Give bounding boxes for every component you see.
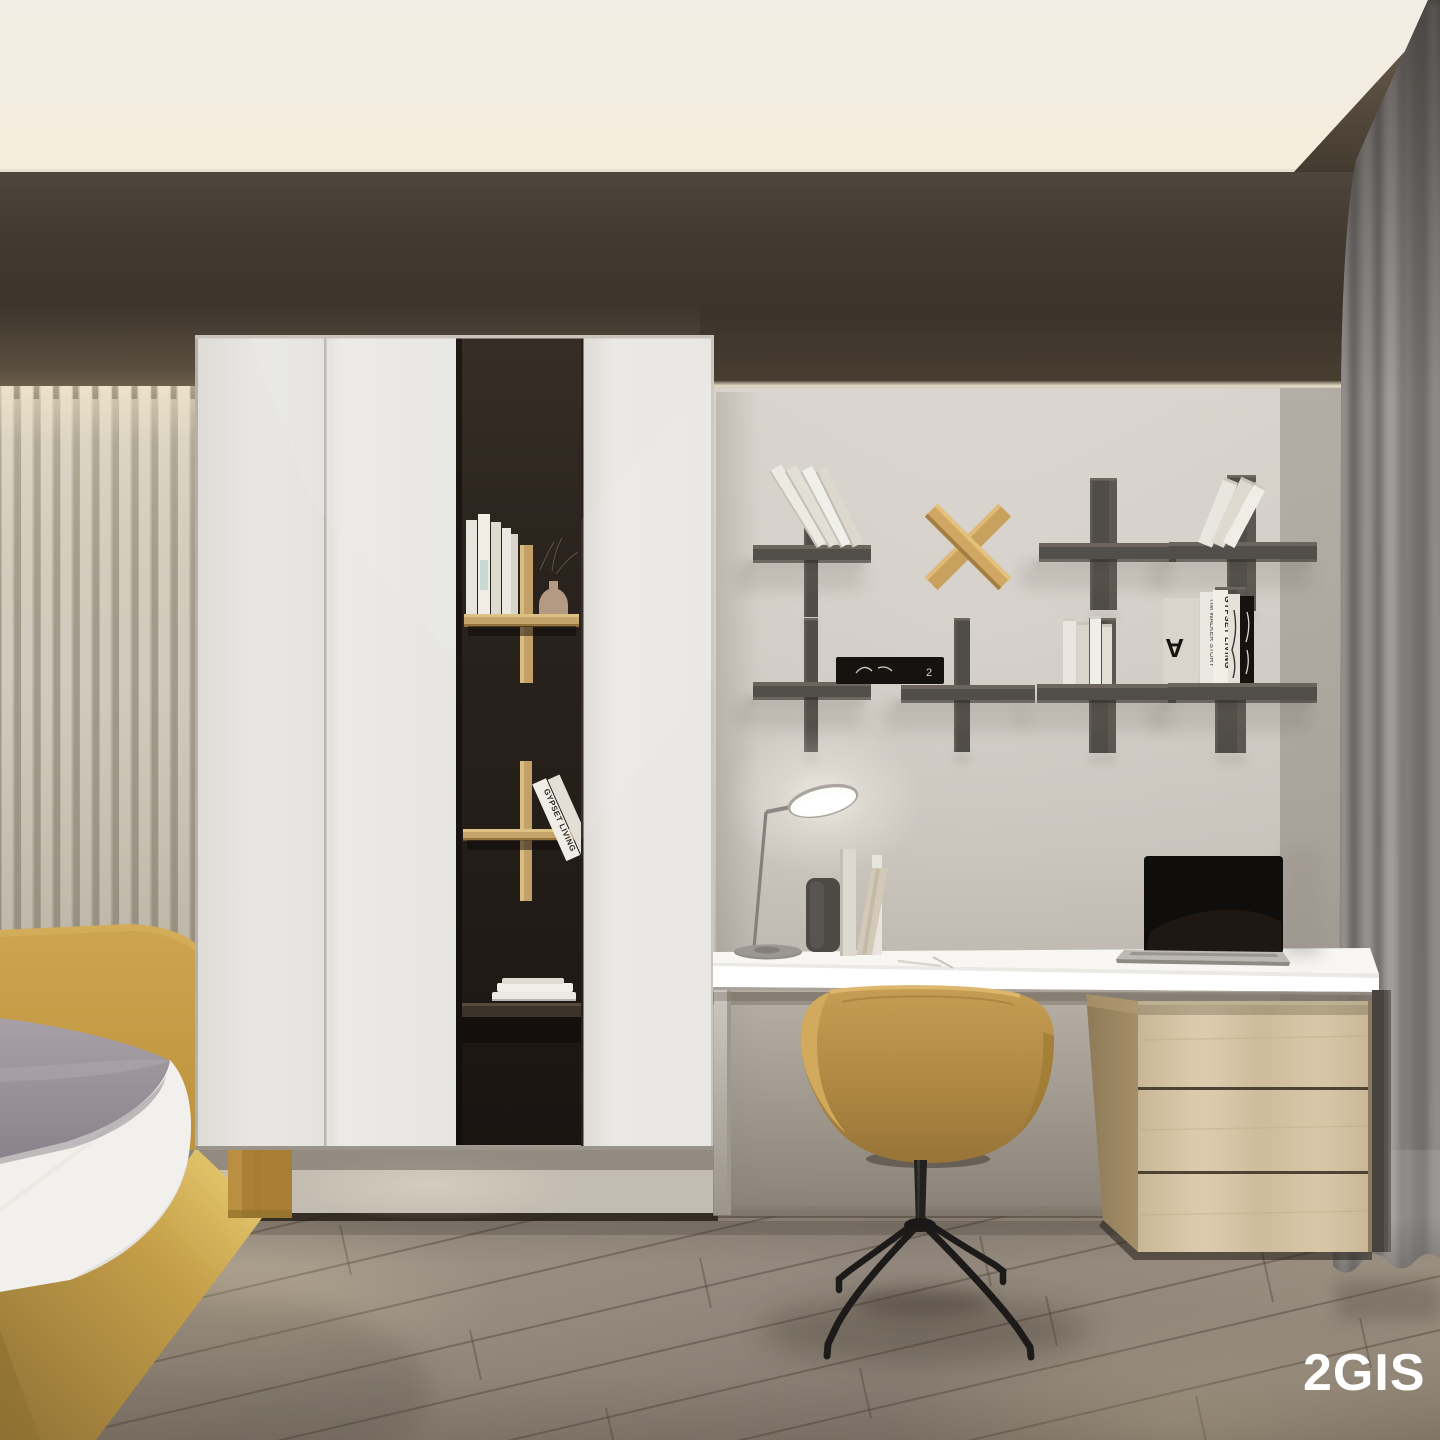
svg-text:A: A — [1165, 633, 1184, 663]
svg-text:2GIS: 2GIS — [1303, 1344, 1426, 1402]
svg-text:2: 2 — [926, 667, 932, 679]
